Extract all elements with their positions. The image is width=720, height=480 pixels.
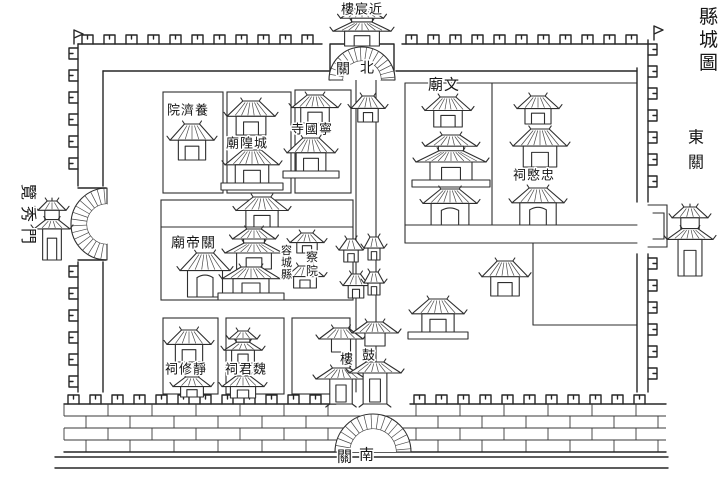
east-suburb-label-char: 東 bbox=[688, 127, 704, 146]
ningguosi-label-char: 國 bbox=[305, 123, 318, 138]
rongcheng-county-label-char: 容 bbox=[281, 243, 292, 257]
north-tower-label: 樓宸近 bbox=[341, 2, 382, 18]
jingxiuci-label-char: 祠 bbox=[165, 363, 178, 378]
woodblock-map-canvas: 縣城圖東關覽秀門樓宸近關北院濟養廟隍城寺國寧廟帝關容城縣察院廟文祠愍忠祠修靜祠君… bbox=[0, 0, 720, 480]
north-tower-label-char: 近 bbox=[369, 3, 382, 18]
zhongminci-label: 祠愍忠 bbox=[513, 168, 554, 184]
zhongminci-upper-hall bbox=[514, 93, 562, 124]
wenmiao-label-char: 文 bbox=[444, 76, 459, 94]
chenghuangmiao-label-char: 城 bbox=[254, 137, 267, 152]
guandimiao-label: 廟帝關 bbox=[171, 235, 215, 252]
street-pavilion-north bbox=[348, 93, 388, 122]
south-gate-label-east-char-char: 南 bbox=[359, 446, 374, 464]
street-pavilion-3 bbox=[340, 271, 372, 298]
ningguosi-upper-hall bbox=[289, 92, 341, 123]
north-gate-label-east-char-char: 北 bbox=[360, 61, 374, 77]
chenghuangmiao-label-char: 隍 bbox=[240, 137, 253, 152]
east-suburb-label-char: 關 bbox=[688, 152, 704, 171]
west-gate-barbican bbox=[71, 188, 107, 260]
yangjiyuan-hall bbox=[167, 121, 217, 160]
south-gate-label-west-char-char: 關 bbox=[337, 448, 352, 466]
street-pavilion-4 bbox=[361, 269, 387, 295]
chayuan-label-char: 院 bbox=[306, 264, 318, 278]
map-title: 縣城圖 bbox=[699, 6, 718, 74]
east-gate-passage bbox=[648, 205, 667, 247]
wenmiao-label-char: 廟 bbox=[428, 76, 443, 94]
jingxiuci-label-char: 靜 bbox=[193, 363, 206, 378]
west-gate-label: 覽秀門 bbox=[19, 184, 38, 244]
drum-tower-label-east-char-char: 鼓 bbox=[362, 349, 375, 364]
rongcheng-county-label: 容城縣 bbox=[281, 243, 292, 281]
jingxiuci-label-char: 修 bbox=[179, 363, 192, 378]
north-gate-label-west-char: 關 bbox=[336, 62, 350, 78]
map-title-char: 圖 bbox=[699, 52, 718, 74]
chayuan-label: 察院 bbox=[306, 250, 318, 278]
guandimiao-label-char: 帝 bbox=[186, 236, 200, 252]
zhongminci-label-char: 愍 bbox=[527, 168, 540, 184]
map-title-char: 縣 bbox=[699, 6, 718, 28]
southeast-hall-lower bbox=[408, 296, 468, 339]
guandimiao-label-char: 關 bbox=[201, 236, 215, 252]
north-tower-label-char: 樓 bbox=[341, 3, 354, 18]
chenghuangmiao-upper-hall bbox=[224, 98, 278, 135]
weijunci-label-char: 魏 bbox=[253, 363, 266, 378]
map-title-char: 城 bbox=[699, 29, 718, 51]
chenghuangmiao-label-char: 廟 bbox=[226, 136, 239, 152]
zhongminci-main-hall bbox=[510, 126, 570, 167]
ningguosi-label: 寺國寧 bbox=[291, 122, 332, 138]
weijunci-label-char: 君 bbox=[239, 363, 252, 378]
weijunci-label: 祠君魏 bbox=[225, 363, 266, 378]
city-wall bbox=[55, 26, 668, 468]
guandimiao-label-char: 廟 bbox=[171, 235, 185, 252]
guandimiao-hall bbox=[177, 250, 233, 297]
jingxiuci-label: 祠修靜 bbox=[165, 363, 206, 378]
guandimiao-gate-hall bbox=[233, 194, 291, 227]
weijunci-upper-hall bbox=[221, 328, 265, 363]
north-gate-label-west-char-char: 關 bbox=[336, 62, 350, 78]
west-gate-label-char: 秀 bbox=[19, 206, 38, 222]
chenghuangmiao-label: 廟隍城 bbox=[226, 136, 267, 152]
ningguosi-label-char: 寧 bbox=[319, 122, 332, 138]
zhongminci-gate bbox=[509, 185, 567, 225]
zhongminci-label-char: 祠 bbox=[513, 169, 526, 184]
yamen-main-hall bbox=[222, 226, 286, 269]
west-gate-label-char: 覽 bbox=[19, 184, 38, 200]
chenghuangmiao-lower-hall bbox=[221, 147, 283, 190]
drum-tower-label-east-char: 鼓 bbox=[362, 349, 375, 364]
drum-tower-label-west-char: 樓 bbox=[340, 353, 353, 368]
county-city-map: 縣城圖東關覽秀門樓宸近關北院濟養廟隍城寺國寧廟帝關容城縣察院廟文祠愍忠祠修靜祠君… bbox=[0, 0, 720, 480]
yangjiyuan-label-char: 養 bbox=[195, 103, 208, 119]
wenmiao-gate bbox=[420, 186, 480, 225]
wenmiao-upper-hall bbox=[422, 94, 474, 127]
west-gate-label-char: 門 bbox=[19, 228, 38, 244]
south-gate-label-east-char: 南 bbox=[359, 446, 374, 464]
wenmiao-label: 廟文 bbox=[428, 76, 459, 94]
street-pavilion-2 bbox=[361, 234, 387, 260]
ningguosi-label-char: 寺 bbox=[291, 123, 304, 138]
drum-tower-label-west-char-char: 樓 bbox=[340, 353, 353, 368]
rongcheng-county-label-char: 縣 bbox=[281, 268, 292, 281]
wenmiao-main-hall bbox=[412, 132, 490, 187]
street-pavilion-1 bbox=[336, 236, 366, 262]
north-gate-label-east-char: 北 bbox=[360, 61, 374, 77]
yangjiyuan-label-char: 院 bbox=[167, 104, 180, 119]
southeast-hall-upper bbox=[479, 258, 531, 296]
zhongminci-label-char: 忠 bbox=[541, 169, 554, 184]
south-gate-label-west-char: 關 bbox=[337, 448, 352, 466]
weijunci-label-char: 祠 bbox=[225, 363, 238, 378]
north-tower-label-char: 宸 bbox=[355, 2, 368, 18]
yangjiyuan-label-char: 濟 bbox=[181, 103, 194, 119]
yangjiyuan-label: 院濟養 bbox=[167, 103, 208, 119]
east-gate-tower bbox=[664, 204, 716, 276]
chayuan-label-char: 察 bbox=[306, 250, 318, 264]
east-suburb-label: 東關 bbox=[688, 127, 704, 171]
jingxiuci-upper-hall bbox=[164, 327, 214, 362]
